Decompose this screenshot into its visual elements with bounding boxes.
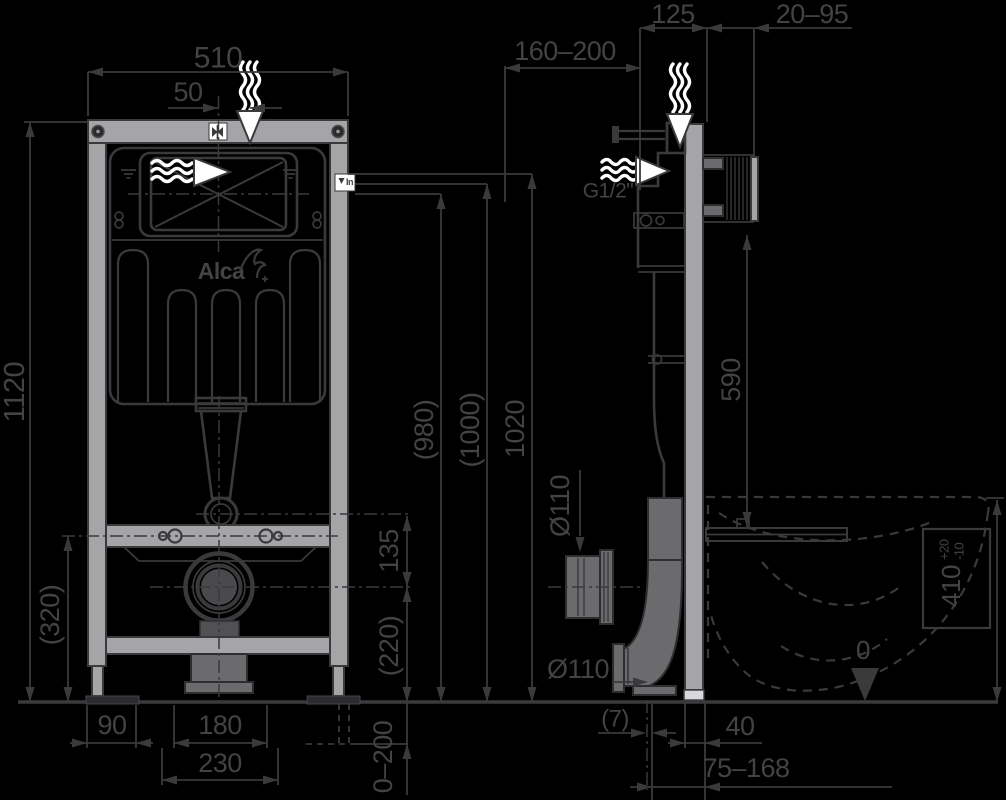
installation-drawing: Alca In [0, 0, 1006, 800]
dim-bowl-tol-minus: -10 [952, 542, 967, 560]
dim-inlet-h3: 1020 [500, 400, 530, 458]
level-mark-left-icon [121, 170, 136, 178]
dim-top-clearance: 160–200 [514, 36, 616, 66]
technical-drawing-svg: Alca In [0, 0, 1006, 800]
dim-inlet-h1: (980) [409, 400, 439, 461]
dim-bracket-to-seat: 590 [716, 358, 746, 402]
floor-datum-label: 0 [856, 635, 870, 665]
brand-star-icon [262, 276, 268, 282]
brand-logo: Alca [198, 258, 245, 284]
right-foot-plate [307, 696, 360, 704]
bowl-fixing-bracket [706, 519, 847, 541]
side-fixing-left-icon [115, 212, 123, 228]
dim-valve-offset: 50 [173, 77, 202, 107]
side-dimensions: 125 20–95 160–200 590 Ø110 Ø110 (7) 40 7… [505, 0, 1004, 800]
front-dimensions: 510 50 1120 (320) 90 180 230 135 (220) [0, 42, 537, 796]
dim-bowl-height: 410 [936, 565, 966, 607]
dim-plate-gap: 40 [725, 711, 754, 741]
wall-anchor-bracket [703, 155, 758, 222]
front-view-pipes [106, 398, 330, 693]
side-view-frame [548, 123, 847, 790]
dim-frame-height: 1120 [0, 362, 31, 422]
dim-inlet-h2: (1000) [455, 392, 485, 467]
drain-elbow [613, 498, 682, 695]
dim-sleeve-dia: Ø110 [545, 475, 575, 537]
dim-leg-adjust: 0–200 [368, 721, 398, 794]
dim-bowl-tol-plus: +20 [937, 539, 952, 560]
dim-pipe-spacing: 230 [198, 748, 242, 778]
dim-rail-height: (320) [35, 585, 65, 646]
dim-drain-height: (220) [374, 616, 404, 677]
dim-outlet-range: 75–168 [702, 753, 789, 783]
water-thread-label: G1/2" [583, 180, 634, 203]
inlet-level-badge: In [335, 174, 355, 191]
left-foot-plate [86, 696, 139, 704]
dim-outlet-dia: Ø110 [547, 654, 609, 684]
front-view-cistern: Alca [110, 148, 325, 404]
dim-bolt-spacing: 180 [198, 710, 242, 740]
side-fixing-right-icon [313, 212, 321, 228]
drain-socket [186, 554, 253, 621]
water-pipe-cap [612, 126, 619, 143]
dim-axis-gap: (7) [601, 706, 629, 733]
dim-frame-depth: 125 [651, 0, 695, 29]
dim-foot-offset: 90 [97, 710, 126, 740]
datum-triangle-icon [851, 668, 879, 701]
dim-front-width: 510 [194, 42, 243, 75]
mounting-plate [685, 124, 703, 690]
dim-flush-to-drain: 135 [374, 529, 404, 573]
inlet-badge-label: In [346, 177, 353, 187]
dim-wall-thickness: 20–95 [776, 0, 849, 29]
